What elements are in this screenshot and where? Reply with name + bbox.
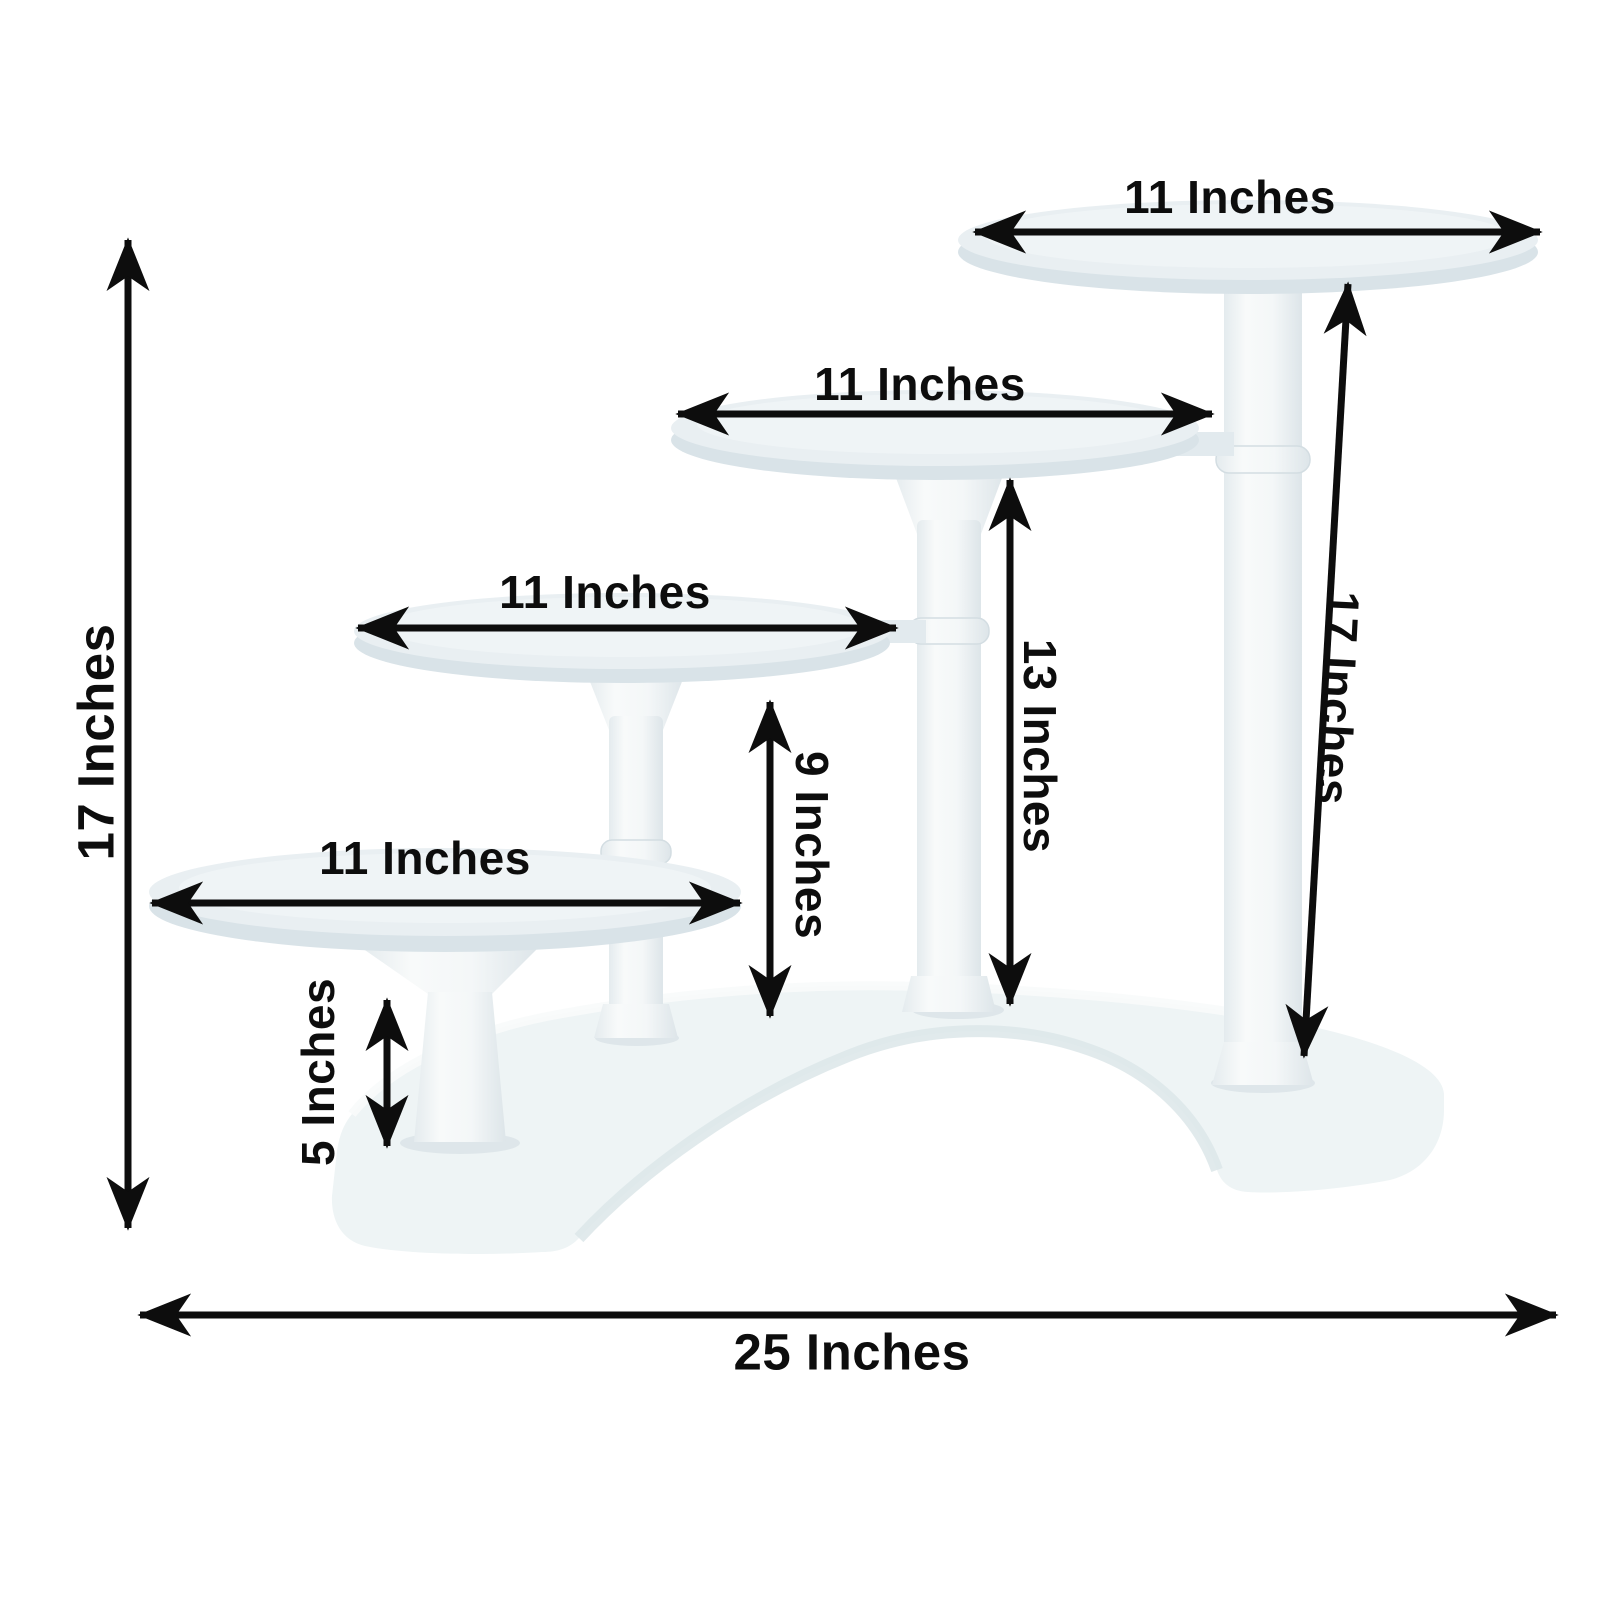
label-overall-height: 17 Inches: [67, 624, 126, 861]
tier1-pillar: [1224, 268, 1302, 1085]
label-tier1-column-height: 17 Inches: [1305, 590, 1370, 807]
dimension-diagram: 11 Inches 11 Inches 11 Inches 11 Inches …: [0, 0, 1600, 1600]
tier4-cone: [362, 948, 538, 994]
label-overall-width: 25 Inches: [734, 1323, 971, 1382]
label-tier3-diameter: 11 Inches: [499, 565, 711, 619]
label-tier4-column-height: 5 Inches: [291, 978, 345, 1166]
tier2-pillar-foot: [902, 976, 996, 1012]
label-tier4-diameter: 11 Inches: [319, 831, 531, 885]
tier1-pillar-foot: [1212, 1042, 1314, 1085]
label-tier3-column-height: 9 Inches: [785, 751, 839, 939]
tier2-pillar: [917, 520, 981, 1012]
tier3-pillar-foot: [594, 1004, 678, 1038]
label-tier2-column-height: 13 Inches: [1013, 639, 1067, 853]
label-tier1-diameter: 11 Inches: [1124, 170, 1336, 224]
label-tier2-diameter: 11 Inches: [814, 357, 1026, 411]
tier4-pillar: [414, 992, 506, 1142]
